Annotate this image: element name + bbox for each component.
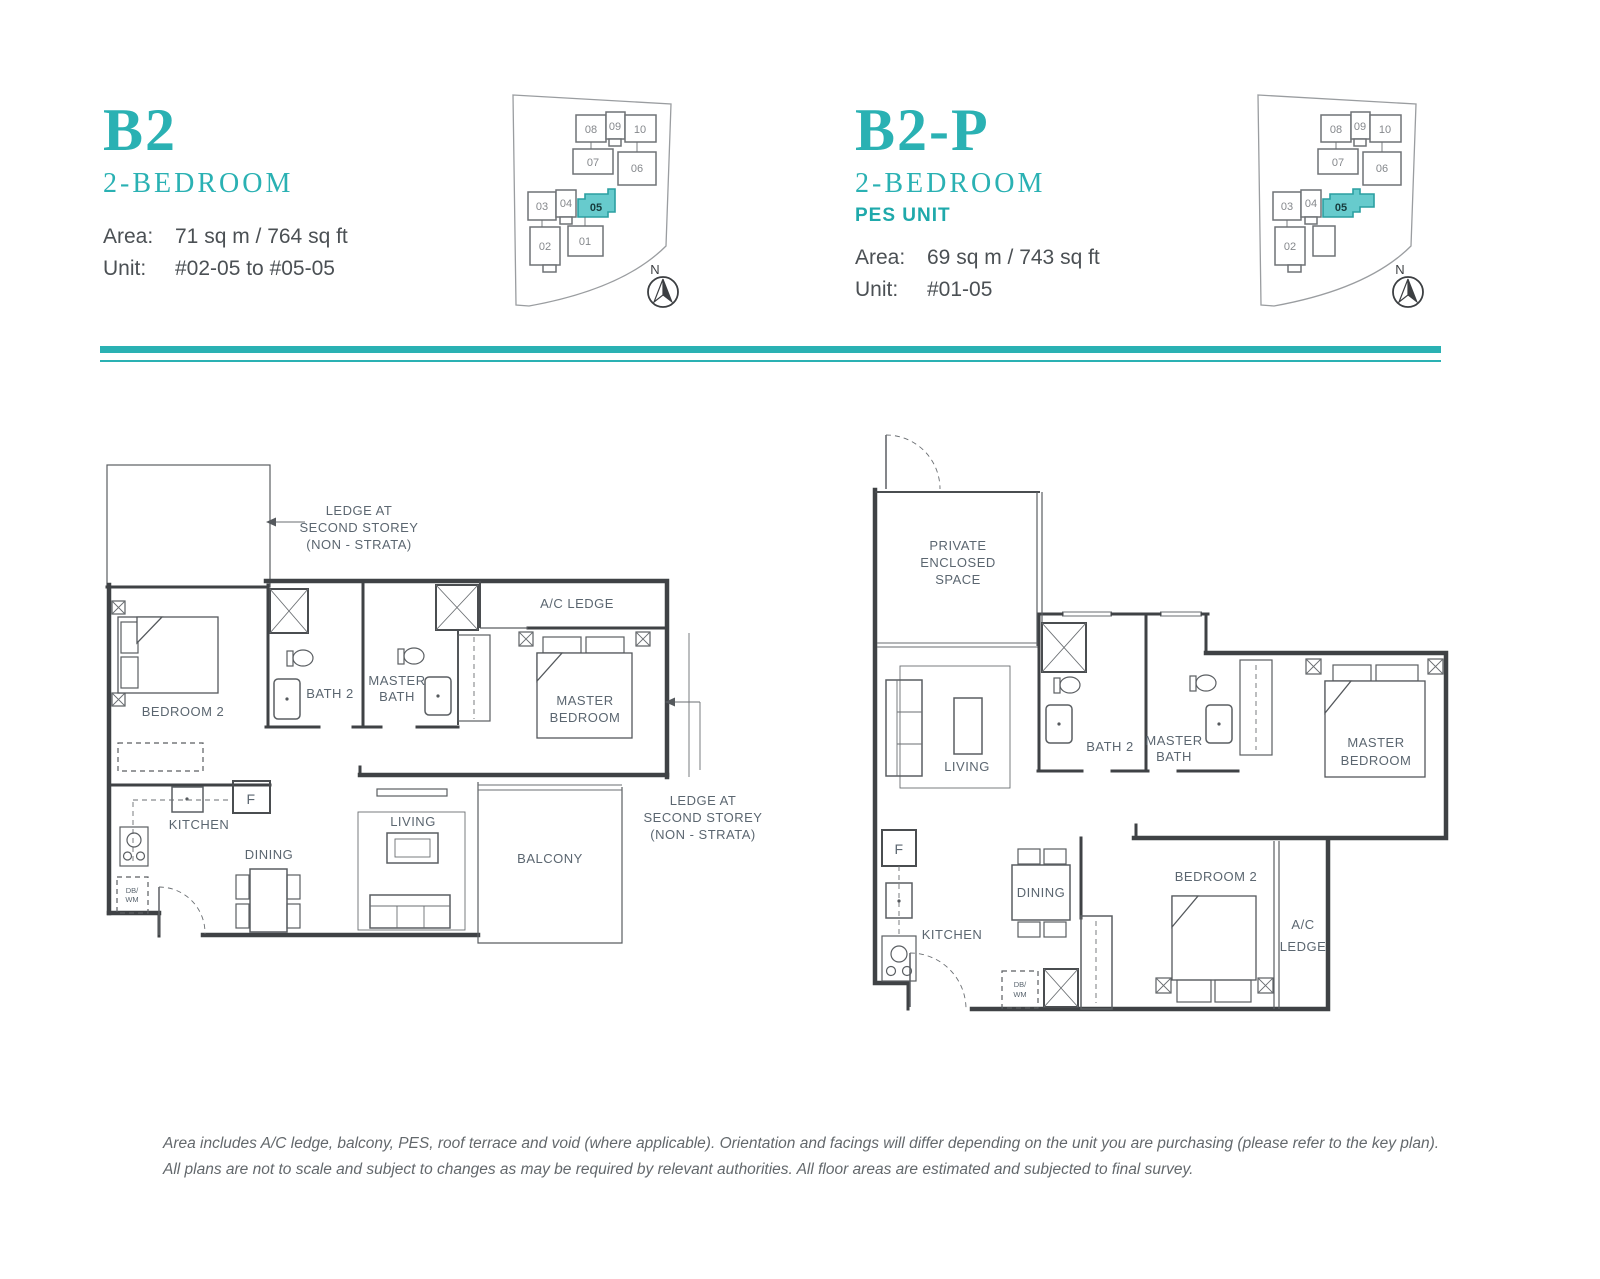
unit-05-highlight xyxy=(1323,189,1374,217)
svg-text:BEDROOM 2: BEDROOM 2 xyxy=(1175,869,1258,884)
svg-text:DINING: DINING xyxy=(1017,885,1066,900)
svg-text:05: 05 xyxy=(590,202,602,214)
area-value: 71 sq m / 764 sq ft xyxy=(175,224,348,249)
disclaimer-line-1: Area includes A/C ledge, balcony, PES, r… xyxy=(163,1131,1448,1157)
ledge-rect xyxy=(107,465,270,587)
stove-icon xyxy=(120,827,148,866)
unit-label: Unit: xyxy=(103,256,175,281)
svg-text:LEDGE AT: LEDGE AT xyxy=(326,503,393,518)
corridor-walls xyxy=(1081,838,1112,1009)
svg-text:07: 07 xyxy=(587,157,599,169)
sofa-icon xyxy=(370,895,450,928)
svg-text:KITCHEN: KITCHEN xyxy=(922,927,983,942)
unit-code-b2: B2 xyxy=(103,100,348,160)
svg-text:A/C LEDGE: A/C LEDGE xyxy=(540,596,614,611)
svg-text:A/C: A/C xyxy=(1291,917,1314,932)
north-arrow-icon: N xyxy=(648,262,678,307)
svg-text:SECOND STOREY: SECOND STOREY xyxy=(644,810,763,825)
entry-door-icon xyxy=(910,953,966,1009)
svg-text:10: 10 xyxy=(1379,124,1391,136)
shower-icon xyxy=(270,585,478,633)
wardrobe-icon xyxy=(118,743,203,771)
entry-door-icon xyxy=(159,887,205,935)
unit-label: Unit: xyxy=(855,277,927,302)
svg-text:SECOND STOREY: SECOND STOREY xyxy=(300,520,419,535)
svg-text:LIVING: LIVING xyxy=(944,759,990,774)
svg-text:BATH 2: BATH 2 xyxy=(306,686,354,701)
sink-icon xyxy=(1046,705,1232,743)
sofa-icon xyxy=(886,680,922,776)
db-wm-icon: DB/ WM xyxy=(1002,971,1038,1008)
svg-text:WM: WM xyxy=(1013,990,1026,999)
bed-icon xyxy=(118,617,218,693)
svg-text:08: 08 xyxy=(585,124,597,136)
svg-text:F: F xyxy=(894,841,903,857)
bed-icon xyxy=(1172,896,1256,1002)
svg-text:04: 04 xyxy=(560,198,572,210)
svg-text:BATH: BATH xyxy=(1156,749,1192,764)
ac-ledge-walls xyxy=(1274,841,1279,1009)
svg-text:MASTER: MASTER xyxy=(556,693,613,708)
svg-text:09: 09 xyxy=(609,121,621,133)
unit-value: #01-05 xyxy=(927,277,992,302)
svg-text:MASTER: MASTER xyxy=(1145,733,1202,748)
svg-text:08: 08 xyxy=(1330,124,1342,136)
dining-table-icon xyxy=(236,869,300,932)
svg-text:BATH 2: BATH 2 xyxy=(1086,739,1134,754)
north-arrow-icon: N xyxy=(1393,262,1423,307)
wardrobe-icon xyxy=(458,635,490,721)
svg-text:LEDGE AT: LEDGE AT xyxy=(670,793,737,808)
floorplan-b2: LEDGE AT SECOND STOREY (NON - STRATA) xyxy=(95,425,795,970)
fridge-icon: F xyxy=(882,830,916,866)
disclaimer-line-2: All plans are not to scale and subject t… xyxy=(163,1157,1448,1183)
shaft-icon xyxy=(1044,969,1078,1007)
svg-text:PRIVATE: PRIVATE xyxy=(929,538,986,553)
svg-text:03: 03 xyxy=(1281,201,1293,213)
svg-text:N: N xyxy=(650,262,659,277)
area-value: 69 sq m / 743 sq ft xyxy=(927,245,1100,270)
divider-bar xyxy=(100,346,1441,353)
svg-text:DINING: DINING xyxy=(245,847,294,862)
svg-text:09: 09 xyxy=(1354,121,1366,133)
svg-text:BATH: BATH xyxy=(379,689,415,704)
pes-door-icon xyxy=(886,435,940,489)
svg-text:01: 01 xyxy=(579,236,591,248)
svg-text:BEDROOM 2: BEDROOM 2 xyxy=(142,704,225,719)
svg-text:MASTER: MASTER xyxy=(1347,735,1404,750)
divider-line xyxy=(100,360,1441,362)
svg-text:02: 02 xyxy=(539,241,551,253)
svg-text:10: 10 xyxy=(634,124,646,136)
svg-text:LEDGE: LEDGE xyxy=(1280,939,1327,954)
floor-plan-brochure-page: B2 2-BEDROOM Area: 71 sq m / 764 sq ft U… xyxy=(0,0,1600,1279)
toilet-icon xyxy=(287,648,424,666)
svg-text:N: N xyxy=(1395,262,1404,277)
svg-text:02: 02 xyxy=(1284,241,1296,253)
unit-specs-b2: Area: 71 sq m / 764 sq ft Unit: #02-05 t… xyxy=(103,224,348,281)
svg-text:03: 03 xyxy=(536,201,548,213)
svg-text:KITCHEN: KITCHEN xyxy=(169,817,230,832)
svg-text:WM: WM xyxy=(125,895,138,904)
svg-text:MASTER: MASTER xyxy=(368,673,425,688)
coffee-table-icon xyxy=(954,698,982,754)
svg-text:06: 06 xyxy=(1376,163,1388,175)
toilet-icon xyxy=(1054,675,1216,693)
keyplan-right: 08 09 10 07 06 03 04 05 02 N xyxy=(1240,82,1458,314)
svg-text:DB/: DB/ xyxy=(126,886,139,895)
stove-icon xyxy=(882,936,916,981)
window-marks xyxy=(1306,659,1443,674)
svg-text:ENCLOSED: ENCLOSED xyxy=(920,555,996,570)
unit-type-b2: 2-BEDROOM xyxy=(103,170,348,198)
svg-text:DB/: DB/ xyxy=(1014,980,1027,989)
svg-text:SPACE: SPACE xyxy=(935,572,981,587)
db-wm-icon: DB/ WM xyxy=(117,877,148,913)
svg-text:BEDROOM: BEDROOM xyxy=(550,710,621,725)
unit-b2-header: B2 2-BEDROOM Area: 71 sq m / 764 sq ft U… xyxy=(103,100,348,288)
tv-console-icon xyxy=(377,789,447,796)
unit-specs-b2p: Area: 69 sq m / 743 sq ft Unit: #01-05 xyxy=(855,245,1100,302)
svg-text:LIVING: LIVING xyxy=(390,814,436,829)
floorplan-b2p: F DB/ WM xyxy=(828,413,1458,1025)
area-label: Area: xyxy=(855,245,927,270)
area-label: Area: xyxy=(103,224,175,249)
unit-code-b2p: B2-P xyxy=(855,100,1100,160)
living-furniture xyxy=(358,789,465,930)
wardrobe-icon xyxy=(1240,660,1272,755)
svg-text:BEDROOM: BEDROOM xyxy=(1341,753,1412,768)
disclaimer: Area includes A/C ledge, balcony, PES, r… xyxy=(163,1131,1448,1183)
svg-text:(NON - STRATA): (NON - STRATA) xyxy=(306,537,411,552)
unit-type-b2p: 2-BEDROOM xyxy=(855,170,1100,198)
svg-text:07: 07 xyxy=(1332,157,1344,169)
unit-b2p-header: B2-P 2-BEDROOM PES UNIT Area: 69 sq m / … xyxy=(855,100,1100,309)
keyplan-left: 08 09 10 07 06 03 04 05 02 01 N xyxy=(495,82,713,314)
kitchen-counter xyxy=(886,866,912,936)
svg-text:06: 06 xyxy=(631,163,643,175)
svg-text:BALCONY: BALCONY xyxy=(517,851,583,866)
ledge-callout-top: LEDGE AT SECOND STOREY (NON - STRATA) xyxy=(266,503,418,552)
unit-value: #02-05 to #05-05 xyxy=(175,256,335,281)
unit-pes-b2p: PES UNIT xyxy=(855,206,1100,225)
svg-text:05: 05 xyxy=(1335,202,1347,214)
svg-text:F: F xyxy=(246,791,255,807)
svg-text:(NON - STRATA): (NON - STRATA) xyxy=(650,827,755,842)
shower-icon xyxy=(1042,623,1086,672)
ledge-callout-right: LEDGE AT SECOND STOREY (NON - STRATA) xyxy=(644,633,763,842)
svg-text:04: 04 xyxy=(1305,198,1317,210)
